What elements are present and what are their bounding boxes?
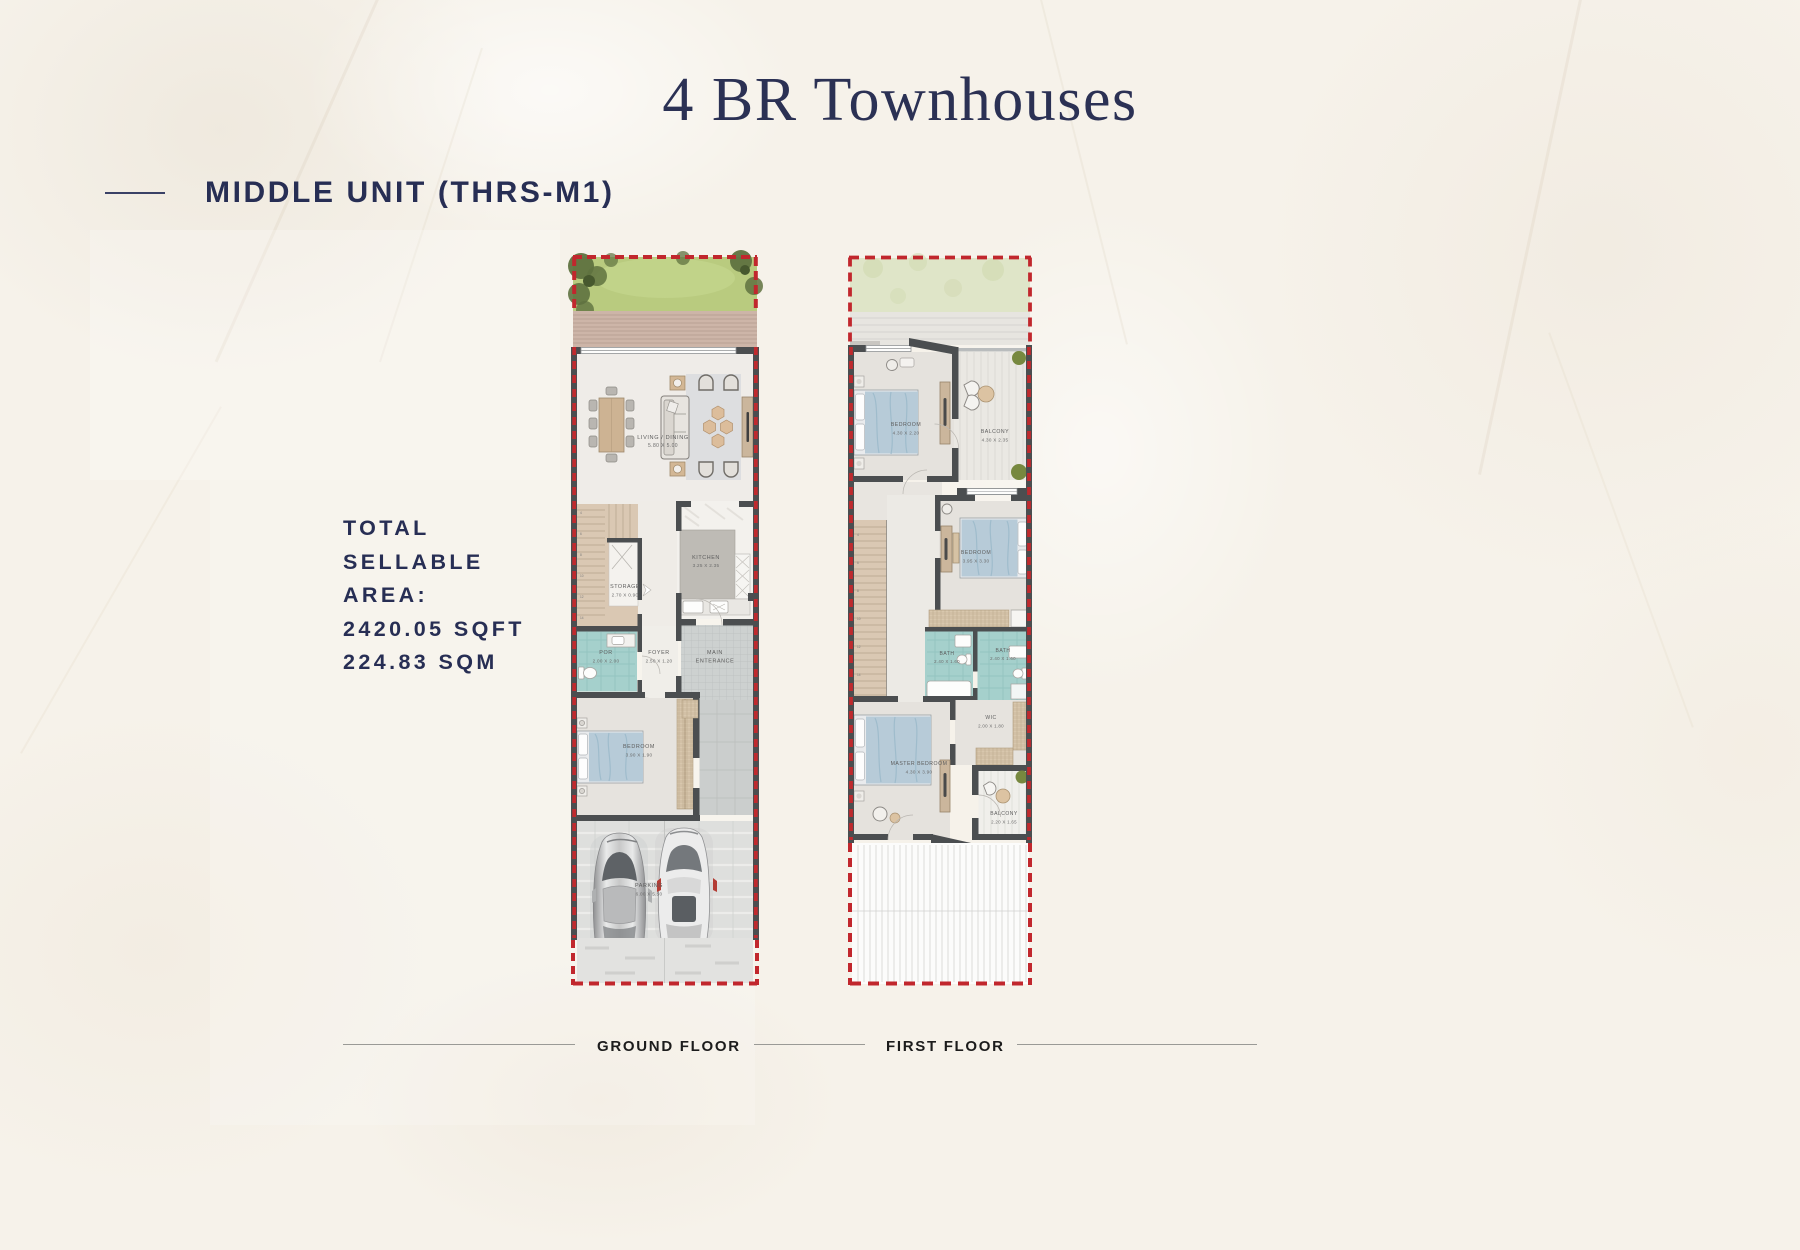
svg-text:2.00 X 2.00: 2.00 X 2.00 xyxy=(593,659,620,664)
svg-text:10: 10 xyxy=(857,617,861,621)
svg-text:4.30 X 3.90: 4.30 X 3.90 xyxy=(906,770,933,775)
svg-text:BEDROOM: BEDROOM xyxy=(623,744,655,750)
svg-text:STORAGE: STORAGE xyxy=(610,584,640,590)
svg-text:MASTER BEDROOM: MASTER BEDROOM xyxy=(891,761,948,767)
svg-text:2.40 X 1.60: 2.40 X 1.60 xyxy=(934,659,960,664)
svg-text:2.00 X 1.80: 2.00 X 1.80 xyxy=(978,724,1004,729)
svg-text:MAIN: MAIN xyxy=(707,650,723,656)
svg-text:3.25 X 2.35: 3.25 X 2.35 xyxy=(693,563,720,568)
svg-text:6: 6 xyxy=(580,532,582,536)
svg-text:BATH: BATH xyxy=(996,648,1011,654)
svg-text:12: 12 xyxy=(857,645,861,649)
svg-text:WIC: WIC xyxy=(985,715,996,721)
svg-text:3.90 X 1.90: 3.90 X 1.90 xyxy=(626,753,653,758)
svg-text:BATH: BATH xyxy=(940,651,955,657)
svg-text:BEDROOM: BEDROOM xyxy=(961,550,991,556)
svg-text:ENTERANCE: ENTERANCE xyxy=(696,659,735,665)
svg-text:PARKING: PARKING xyxy=(635,883,663,889)
svg-text:2.50 X 1.20: 2.50 X 1.20 xyxy=(646,659,673,664)
svg-text:8: 8 xyxy=(857,589,859,593)
svg-text:6.00 X 5.50: 6.00 X 5.50 xyxy=(636,892,663,897)
svg-text:LIVING / DINING: LIVING / DINING xyxy=(637,435,689,441)
svg-text:5.80 X 5.00: 5.80 X 5.00 xyxy=(648,443,678,449)
svg-text:2.70 X 0.90: 2.70 X 0.90 xyxy=(612,593,639,598)
svg-text:12: 12 xyxy=(580,595,584,599)
svg-text:2.40 X 1.60: 2.40 X 1.60 xyxy=(990,656,1016,661)
svg-text:4: 4 xyxy=(580,511,582,515)
svg-text:10: 10 xyxy=(580,574,584,578)
svg-text:FOYER: FOYER xyxy=(648,650,670,656)
svg-text:8: 8 xyxy=(580,553,582,557)
svg-text:4.30 X 2.20: 4.30 X 2.20 xyxy=(893,431,920,436)
svg-text:BALCONY: BALCONY xyxy=(990,811,1018,817)
svg-text:6: 6 xyxy=(857,561,859,565)
svg-text:4: 4 xyxy=(857,533,859,537)
svg-text:KITCHEN: KITCHEN xyxy=(692,555,720,561)
svg-text:2.20 X 1.65: 2.20 X 1.65 xyxy=(991,820,1017,825)
svg-text:POR: POR xyxy=(599,650,612,656)
svg-text:BALCONY: BALCONY xyxy=(981,429,1009,435)
svg-text:BEDROOM: BEDROOM xyxy=(891,422,921,428)
svg-text:4.30 X 2.35: 4.30 X 2.35 xyxy=(982,438,1009,443)
svg-text:3.95 X 3.30: 3.95 X 3.30 xyxy=(963,559,990,564)
svg-text:14: 14 xyxy=(580,616,584,620)
svg-text:14: 14 xyxy=(857,673,861,677)
